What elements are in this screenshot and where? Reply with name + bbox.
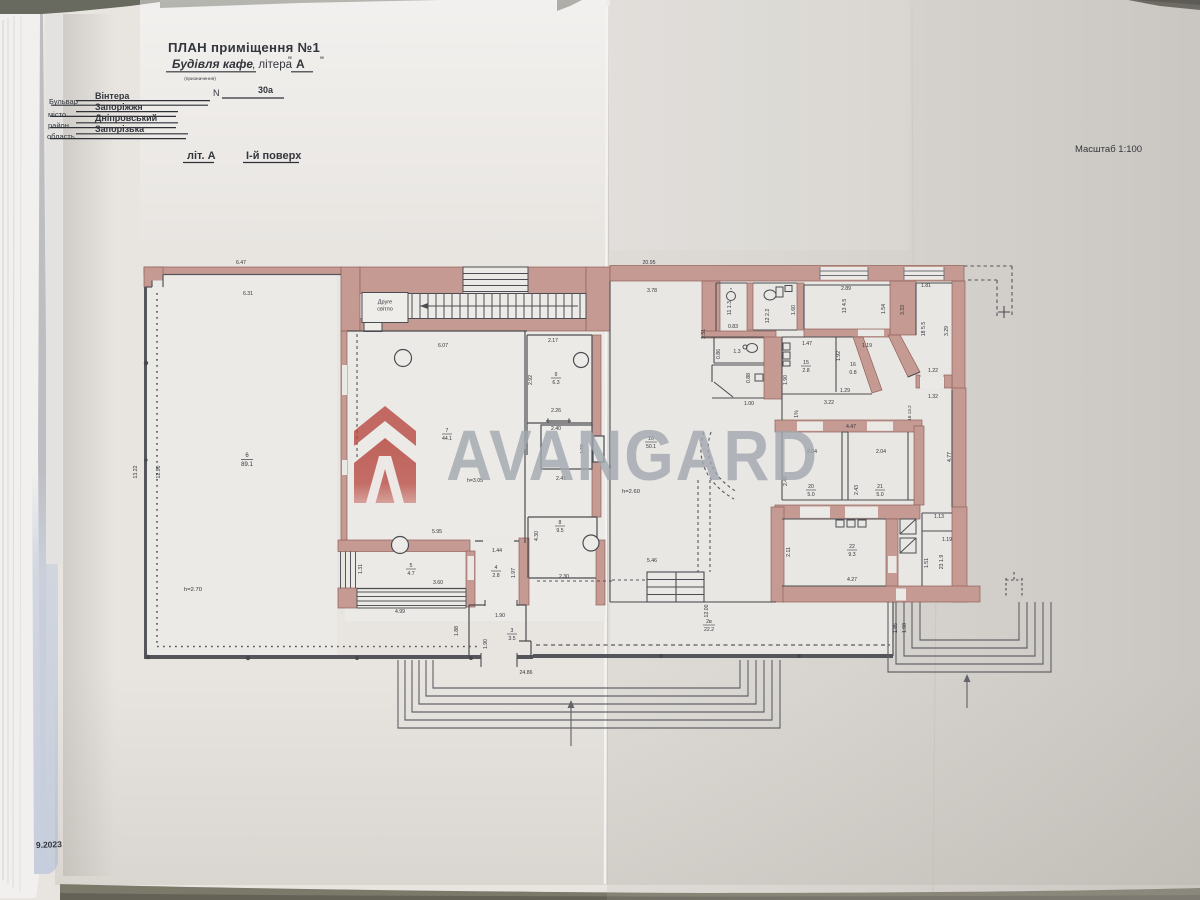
svg-text:Вінтера: Вінтера <box>95 91 130 101</box>
svg-text:1.29: 1.29 <box>840 388 850 394</box>
svg-text:23 1.9: 23 1.9 <box>939 555 945 570</box>
svg-text:1.92: 1.92 <box>836 351 842 361</box>
svg-text:8: 8 <box>559 520 562 526</box>
svg-text:2.04: 2.04 <box>876 449 886 455</box>
svg-text:15: 15 <box>803 360 809 366</box>
svg-text:": " <box>320 55 324 67</box>
svg-text:6.47: 6.47 <box>236 260 246 266</box>
svg-text:9.3: 9.3 <box>848 552 855 558</box>
svg-text:(призначення): (призначення) <box>184 76 216 82</box>
svg-text:Друге: Друге <box>378 300 392 306</box>
svg-text:1.54: 1.54 <box>881 304 887 314</box>
svg-text:А: А <box>296 57 305 71</box>
svg-text:1.19: 1.19 <box>942 537 952 543</box>
svg-text:1.81: 1.81 <box>921 283 931 289</box>
svg-text:5: 5 <box>410 563 413 569</box>
svg-text:1.19: 1.19 <box>862 343 872 349</box>
svg-text:Запоріжжя: Запоріжжя <box>95 102 143 112</box>
svg-text:12 2.2: 12 2.2 <box>765 309 771 324</box>
svg-text:30а: 30а <box>258 85 274 95</box>
svg-text:2.43: 2.43 <box>854 485 860 495</box>
svg-text:2.8: 2.8 <box>492 573 499 579</box>
svg-text:6.31: 6.31 <box>243 291 253 297</box>
svg-text:1.98: 1.98 <box>902 623 908 633</box>
svg-text:89.1: 89.1 <box>241 462 253 468</box>
svg-text:1.90: 1.90 <box>495 613 505 619</box>
svg-text:Дніпровський: Дніпровський <box>95 113 157 123</box>
svg-text:, літера: , літера <box>252 59 293 71</box>
svg-text:2.11: 2.11 <box>786 547 792 557</box>
svg-text:3.22: 3.22 <box>824 400 834 406</box>
svg-text:Масштаб 1:100: Масштаб 1:100 <box>1075 144 1142 155</box>
svg-text:1.60: 1.60 <box>791 305 797 315</box>
svg-text:16: 16 <box>850 362 856 368</box>
svg-text:1.44: 1.44 <box>492 548 502 554</box>
svg-text:0.86: 0.86 <box>716 349 722 359</box>
svg-text:4.99: 4.99 <box>395 609 405 615</box>
svg-text:4: 4 <box>495 565 498 571</box>
svg-text:Запорізька: Запорізька <box>95 124 145 134</box>
svg-text:5.95: 5.95 <box>432 529 442 535</box>
svg-text:": " <box>288 55 292 67</box>
svg-text:2.30: 2.30 <box>559 574 569 580</box>
svg-text:6.3: 6.3 <box>552 380 559 386</box>
svg-text:9: 9 <box>555 372 558 378</box>
svg-text:1.97: 1.97 <box>511 568 517 578</box>
svg-text:1.51: 1.51 <box>924 558 930 568</box>
svg-text:0.88: 0.88 <box>746 373 752 383</box>
svg-text:13 4.5: 13 4.5 <box>842 299 848 314</box>
svg-text:1.3: 1.3 <box>733 349 740 355</box>
svg-text:3.5: 3.5 <box>508 636 515 642</box>
svg-text:3.29: 3.29 <box>944 326 950 336</box>
svg-text:1.31: 1.31 <box>358 564 364 574</box>
svg-text:1.47: 1.47 <box>802 341 812 347</box>
svg-text:2.8: 2.8 <box>802 368 809 374</box>
svg-text:4.77: 4.77 <box>947 452 953 462</box>
svg-text:область: область <box>47 132 75 141</box>
svg-text:І-й поверх: І-й поверх <box>246 150 302 162</box>
svg-text:N: N <box>213 88 220 98</box>
svg-text:3.33: 3.33 <box>900 305 906 315</box>
svg-text:18 5.5: 18 5.5 <box>921 322 927 337</box>
svg-text:22: 22 <box>849 544 855 550</box>
svg-text:6.07: 6.07 <box>438 343 448 349</box>
svg-text:4.27: 4.27 <box>847 577 857 583</box>
svg-text:0.8: 0.8 <box>849 370 856 376</box>
svg-text:5.46: 5.46 <box>647 558 657 564</box>
svg-text:22.2: 22.2 <box>704 627 714 633</box>
svg-text:AVANGARD: AVANGARD <box>446 417 819 496</box>
svg-text:літ. А: літ. А <box>187 150 216 162</box>
svg-text:h=2.70: h=2.70 <box>184 587 202 593</box>
svg-text:1.13: 1.13 <box>934 514 944 520</box>
svg-text:Будівля кафе: Будівля кафе <box>172 57 253 71</box>
svg-text:1.00: 1.00 <box>744 401 754 407</box>
svg-text:2в: 2в <box>706 619 712 625</box>
svg-text:12.90: 12.90 <box>156 465 162 478</box>
svg-text:16 13.2: 16 13.2 <box>907 405 912 421</box>
svg-text:ПЛАН приміщення №1: ПЛАН приміщення №1 <box>168 40 320 55</box>
svg-text:світло: світло <box>377 307 393 313</box>
svg-text:3.78: 3.78 <box>647 288 657 294</box>
svg-text:9.2023: 9.2023 <box>36 839 63 850</box>
svg-text:1.32: 1.32 <box>928 394 938 400</box>
svg-text:1.22: 1.22 <box>928 368 938 374</box>
svg-text:4.30: 4.30 <box>534 531 540 541</box>
svg-text:3.60: 3.60 <box>433 580 443 586</box>
svg-text:1.85: 1.85 <box>893 623 899 633</box>
svg-text:місто: місто <box>48 110 66 119</box>
svg-text:3: 3 <box>511 628 514 634</box>
svg-text:21: 21 <box>877 484 883 490</box>
svg-text:2.26: 2.26 <box>551 408 561 414</box>
svg-text:4.47: 4.47 <box>846 424 856 430</box>
svg-text:2.92: 2.92 <box>528 375 534 385</box>
svg-text:24.86: 24.86 <box>520 670 533 676</box>
svg-text:1.90: 1.90 <box>783 375 789 385</box>
svg-text:3.31: 3.31 <box>701 329 707 339</box>
svg-text:11 1.3: 11 1.3 <box>727 301 733 315</box>
svg-text:13.22: 13.22 <box>133 465 139 478</box>
svg-text:1.88: 1.88 <box>454 626 460 636</box>
svg-text:5.0: 5.0 <box>876 492 883 498</box>
svg-text:9.5: 9.5 <box>556 528 563 534</box>
svg-text:0.83: 0.83 <box>728 324 738 330</box>
svg-text:20.95: 20.95 <box>643 260 656 266</box>
svg-text:4.7: 4.7 <box>407 571 414 577</box>
svg-text:1.90: 1.90 <box>483 639 489 649</box>
svg-text:2.17: 2.17 <box>548 338 558 344</box>
svg-text:район: район <box>48 121 69 130</box>
svg-text:2.89: 2.89 <box>841 286 851 292</box>
svg-text:12.00: 12.00 <box>704 604 710 617</box>
